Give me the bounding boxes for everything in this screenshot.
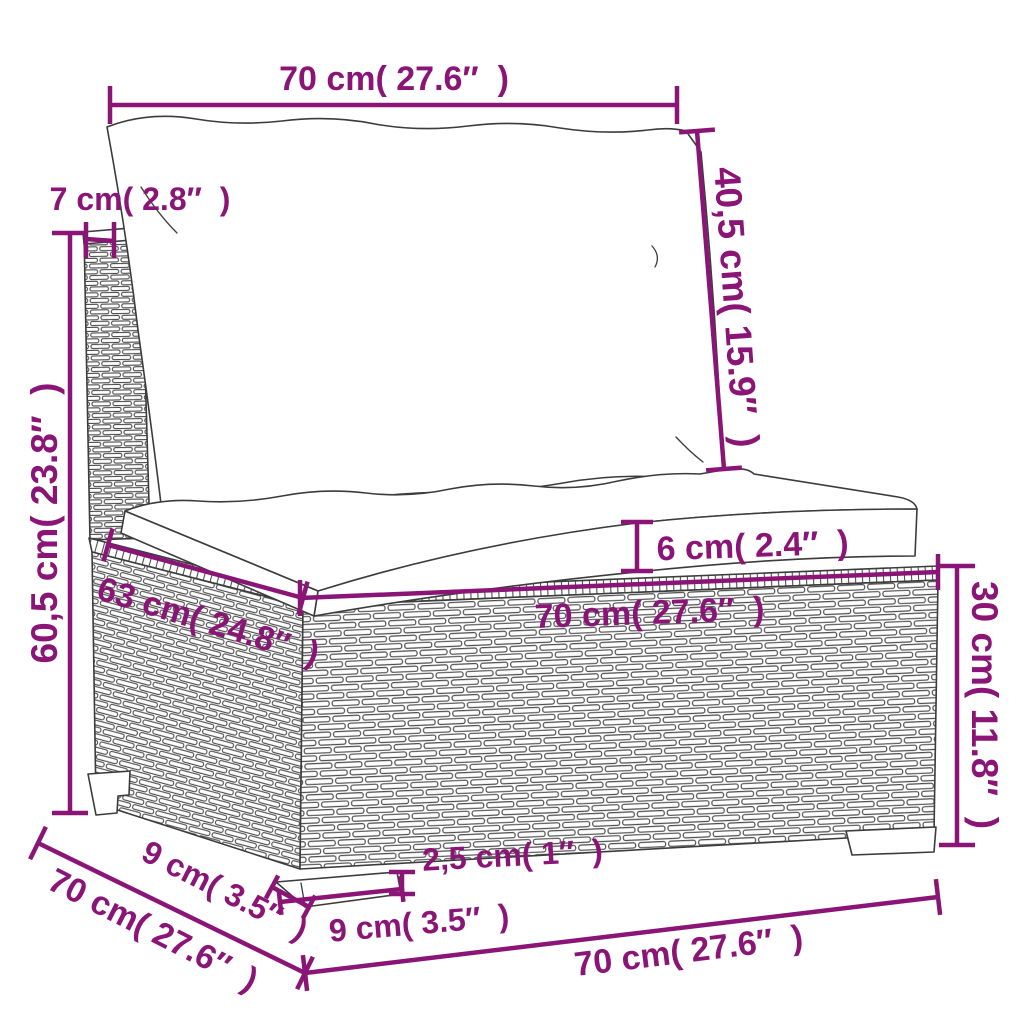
dim-tick [279,889,282,915]
dim-label-top-width: 70 cm( 27.6″ ) [279,60,509,98]
dim-label-seat-cushion-thickness: 6 cm( 2.4″ ) [656,524,849,569]
dim-line [86,239,114,241]
dim-label-overall-height: 60,5 cm( 23.8″ ) [24,383,65,664]
sofa-dimension-diagram: 70 cm( 27.6″ ) 7 cm( 2.8″ ) 60,5 cm( 23.… [0,0,1024,1024]
dim-tick [303,955,307,991]
dim-label-base-height: 30 cm( 11.8″ ) [964,581,1005,829]
dim-tick [706,468,742,471]
sofa-illustration [83,116,938,907]
dim-label-seat-width: 70 cm( 27.6″ ) [534,590,765,636]
dim-tick [936,879,940,915]
dim-tick [679,130,715,133]
dim-top-width: 70 cm( 27.6″ ) [110,60,677,124]
dim-label-back-panel-thickness: 7 cm( 2.8″ ) [50,181,231,217]
back-cushion [107,116,723,512]
dim-base-height: 30 cm( 11.8″ ) [939,566,1005,845]
dim-label-leg-width: 9 cm( 3.5″ ) [327,897,510,949]
dim-tick [401,876,404,902]
dim-tick [30,827,46,859]
dim-leg-height: 2,5 cm( 1″ ) [389,832,604,894]
front-right-leg [846,827,936,855]
dim-overall-height: 60,5 cm( 23.8″ ) [24,233,88,813]
